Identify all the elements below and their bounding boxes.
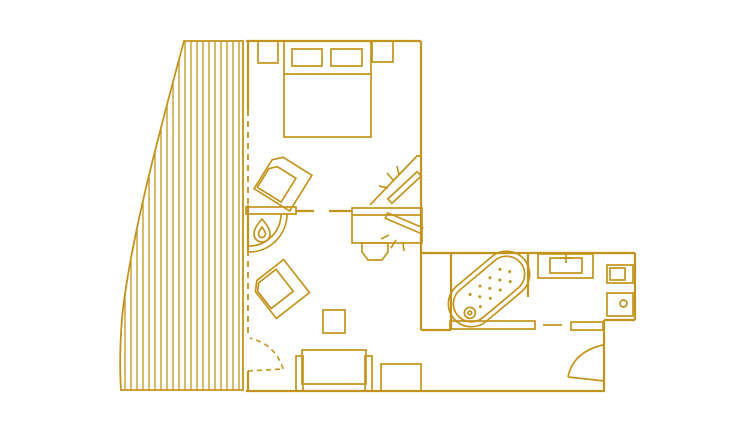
floor-plan-svg	[0, 0, 754, 435]
background	[0, 0, 754, 435]
floor-plan-canvas	[0, 0, 754, 435]
